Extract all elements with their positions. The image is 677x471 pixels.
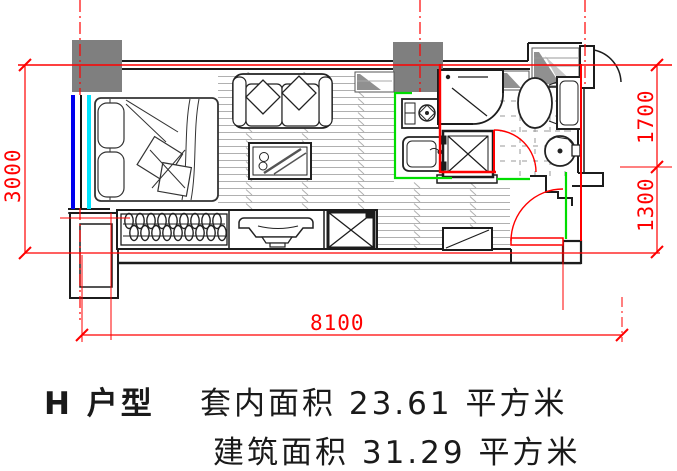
bed (95, 98, 218, 201)
bathroom-door (494, 130, 536, 172)
shower (438, 70, 503, 124)
entry-door-arc (511, 189, 563, 241)
kitchen-cooktop (402, 99, 439, 128)
duct-shaft-bathroom (441, 131, 493, 177)
unit-type-label: H 户型 (44, 389, 155, 420)
wash-basin (545, 136, 580, 166)
column-middle (393, 42, 443, 92)
casement-pane-arc (594, 50, 621, 82)
inner-area-label: 套内面积 23.61 平方米 (200, 389, 567, 420)
dim-label-8100: 8100 (310, 311, 365, 335)
left-window (71, 95, 91, 209)
bathroom-door-arc (494, 130, 536, 172)
sofa (233, 74, 332, 128)
duct-shaft-bottom (328, 212, 374, 248)
window-sill-left-of-column (355, 72, 394, 92)
shoe-cabinet (443, 228, 492, 250)
kitchen-sink (403, 137, 445, 171)
dim-label-1700: 1700 (634, 89, 658, 144)
toilet (518, 77, 581, 129)
coffee-table (249, 143, 311, 179)
dim-label-1300: 1300 (634, 177, 658, 232)
dim-label-3000: 3000 (1, 148, 25, 203)
floor-plan: 3000 1700 1300 8100 (0, 0, 677, 360)
entry-door (511, 189, 563, 245)
gross-area-label: 建筑面积 31.29 平方米 (213, 438, 580, 469)
